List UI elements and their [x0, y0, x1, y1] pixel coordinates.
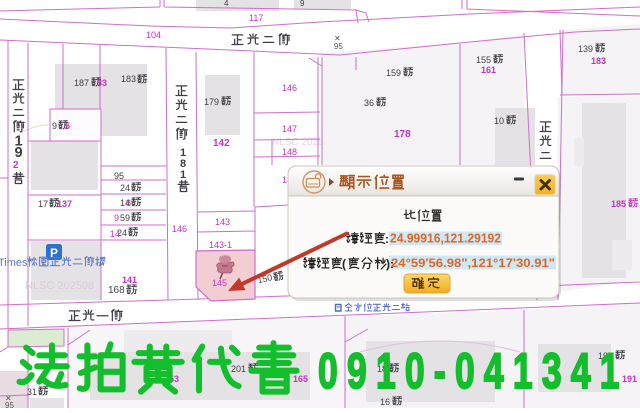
svg-text:148: 148 [282, 147, 297, 157]
svg-text:168: 168 [108, 285, 125, 296]
svg-text:143: 143 [215, 217, 230, 227]
svg-text:33: 33 [97, 78, 107, 88]
svg-text:95: 95 [114, 171, 124, 181]
svg-text:14: 14 [110, 229, 120, 239]
svg-text:145: 145 [212, 278, 227, 288]
svg-text:117: 117 [249, 13, 263, 23]
svg-text:139: 139 [578, 44, 593, 54]
svg-text:183: 183 [591, 56, 606, 66]
svg-text:17: 17 [38, 199, 48, 209]
svg-text:NLSC 202508: NLSC 202508 [25, 280, 94, 292]
svg-text:161: 161 [481, 65, 496, 75]
svg-text:183: 183 [121, 74, 136, 84]
svg-text:36: 36 [364, 98, 374, 108]
svg-text:179: 179 [204, 97, 219, 107]
svg-text:1: 1 [180, 169, 186, 181]
svg-text:143-1: 143-1 [209, 240, 232, 250]
svg-text:95: 95 [334, 42, 343, 51]
svg-text:24°59'56.98",121°17'30.91": 24°59'56.98",121°17'30.91" [391, 256, 555, 270]
svg-text:147: 147 [282, 124, 297, 134]
svg-text:104: 104 [146, 30, 161, 40]
svg-text:185: 185 [611, 199, 626, 209]
svg-text:4: 4 [224, 0, 229, 8]
svg-text:5: 5 [65, 121, 70, 131]
svg-text:146: 146 [282, 83, 297, 93]
svg-text:10: 10 [494, 116, 504, 126]
svg-text:137: 137 [57, 199, 72, 209]
svg-text:9: 9 [300, 0, 305, 8]
svg-text:24: 24 [120, 183, 130, 193]
svg-text:0910-041341: 0910-041341 [318, 344, 629, 399]
svg-text:159: 159 [386, 68, 401, 78]
svg-text:187: 187 [74, 78, 89, 88]
svg-text:9: 9 [52, 121, 57, 131]
svg-text:141: 141 [122, 275, 137, 285]
svg-text:165: 165 [293, 374, 308, 384]
svg-text:8: 8 [126, 198, 131, 208]
svg-text:(: ( [342, 257, 346, 271]
svg-text::: : [385, 232, 389, 246]
svg-text:31: 31 [27, 387, 37, 397]
svg-text:59: 59 [120, 213, 130, 223]
svg-text:24.99916,121.29192: 24.99916,121.29192 [390, 232, 501, 246]
svg-text:Times: Times [0, 257, 28, 269]
svg-text:201: 201 [231, 364, 246, 374]
svg-text:9: 9 [14, 145, 22, 161]
svg-text:178: 178 [394, 129, 411, 140]
svg-text:9: 9 [114, 213, 119, 223]
svg-text:155: 155 [476, 55, 491, 65]
svg-text:95: 95 [5, 401, 14, 408]
svg-text:142: 142 [213, 138, 230, 149]
svg-text:2: 2 [13, 160, 19, 171]
svg-text:146: 146 [172, 224, 187, 234]
